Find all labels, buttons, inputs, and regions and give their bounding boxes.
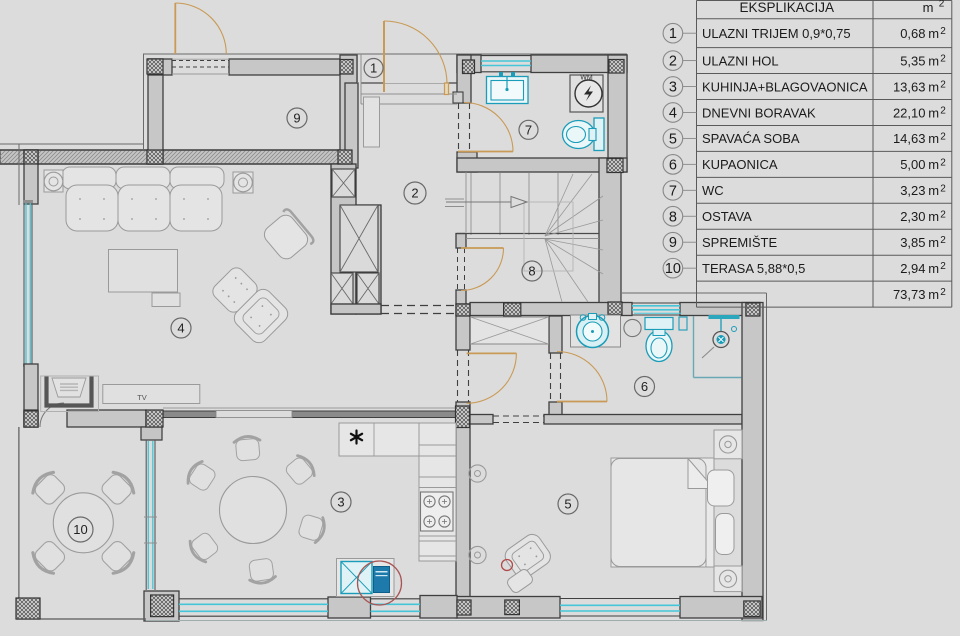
svg-text:2: 2 [940, 209, 946, 220]
svg-text:14,63: 14,63 [893, 131, 926, 146]
svg-text:m: m [928, 53, 939, 68]
svg-text:m: m [928, 183, 939, 198]
svg-text:10: 10 [73, 522, 87, 537]
svg-text:1: 1 [669, 26, 677, 42]
svg-text:1: 1 [370, 61, 377, 76]
svg-text:m: m [923, 0, 934, 15]
svg-text:8: 8 [528, 264, 535, 279]
svg-text:2: 2 [411, 186, 418, 201]
svg-text:m: m [928, 287, 939, 302]
svg-text:9: 9 [293, 111, 300, 126]
svg-text:73,73: 73,73 [893, 287, 926, 302]
svg-text:7: 7 [525, 122, 532, 137]
svg-text:OSTAVA: OSTAVA [702, 209, 752, 224]
svg-text:m: m [928, 131, 939, 146]
svg-text:5: 5 [669, 131, 677, 147]
svg-text:2: 2 [940, 235, 946, 246]
svg-text:SPREMIŠTE: SPREMIŠTE [702, 235, 777, 250]
svg-text:6: 6 [641, 379, 648, 394]
svg-text:8: 8 [669, 209, 677, 225]
svg-text:0,68: 0,68 [900, 26, 925, 41]
svg-text:2: 2 [940, 157, 946, 168]
svg-text:10: 10 [665, 261, 681, 277]
svg-text:DNEVNI BORAVAK: DNEVNI BORAVAK [702, 105, 816, 120]
svg-text:2: 2 [669, 54, 677, 70]
svg-text:KUHINJA+BLAGOVAONICA: KUHINJA+BLAGOVAONICA [702, 79, 868, 94]
svg-text:3,85: 3,85 [900, 235, 925, 250]
svg-text:7: 7 [669, 183, 677, 199]
svg-text:5,00: 5,00 [900, 157, 925, 172]
svg-text:9: 9 [669, 235, 677, 251]
svg-text:TV: TV [137, 393, 147, 402]
svg-text:EKSPLIKACIJA: EKSPLIKACIJA [739, 0, 834, 15]
svg-text:4: 4 [177, 321, 184, 336]
svg-text:5: 5 [564, 497, 571, 512]
svg-text:m: m [928, 261, 939, 276]
svg-text:m: m [928, 157, 939, 172]
svg-text:6: 6 [669, 157, 677, 173]
svg-text:3: 3 [669, 80, 677, 96]
svg-text:2: 2 [940, 131, 946, 142]
svg-text:2: 2 [939, 0, 945, 10]
svg-text:2,94: 2,94 [900, 261, 925, 276]
svg-text:3,23: 3,23 [900, 183, 925, 198]
svg-text:13,63: 13,63 [893, 79, 926, 94]
svg-text:3: 3 [337, 495, 344, 510]
svg-text:2: 2 [940, 261, 946, 272]
svg-text:ULAZNI TRIJEM 0,9*0,75: ULAZNI TRIJEM 0,9*0,75 [702, 26, 851, 41]
svg-text:m: m [928, 235, 939, 250]
svg-text:ULAZNI HOL: ULAZNI HOL [702, 53, 779, 68]
svg-text:2: 2 [940, 80, 946, 91]
svg-text:TERASA 5,88*0,5: TERASA 5,88*0,5 [702, 261, 805, 276]
svg-text:m: m [928, 26, 939, 41]
svg-text:2: 2 [940, 183, 946, 194]
svg-text:SPAVAĆA SOBA: SPAVAĆA SOBA [702, 131, 800, 146]
svg-text:2,30: 2,30 [900, 209, 925, 224]
svg-text:m: m [928, 79, 939, 94]
svg-text:m: m [928, 209, 939, 224]
svg-text:m: m [928, 105, 939, 120]
svg-text:KUPAONICA: KUPAONICA [702, 157, 778, 172]
svg-text:4: 4 [669, 105, 677, 121]
svg-text:WC: WC [702, 183, 724, 198]
svg-text:2: 2 [940, 287, 946, 298]
svg-text:2: 2 [940, 54, 946, 65]
svg-text:22,10: 22,10 [893, 105, 926, 120]
svg-text:2: 2 [940, 105, 946, 116]
svg-text:5,35: 5,35 [900, 53, 925, 68]
svg-text:2: 2 [940, 26, 946, 37]
